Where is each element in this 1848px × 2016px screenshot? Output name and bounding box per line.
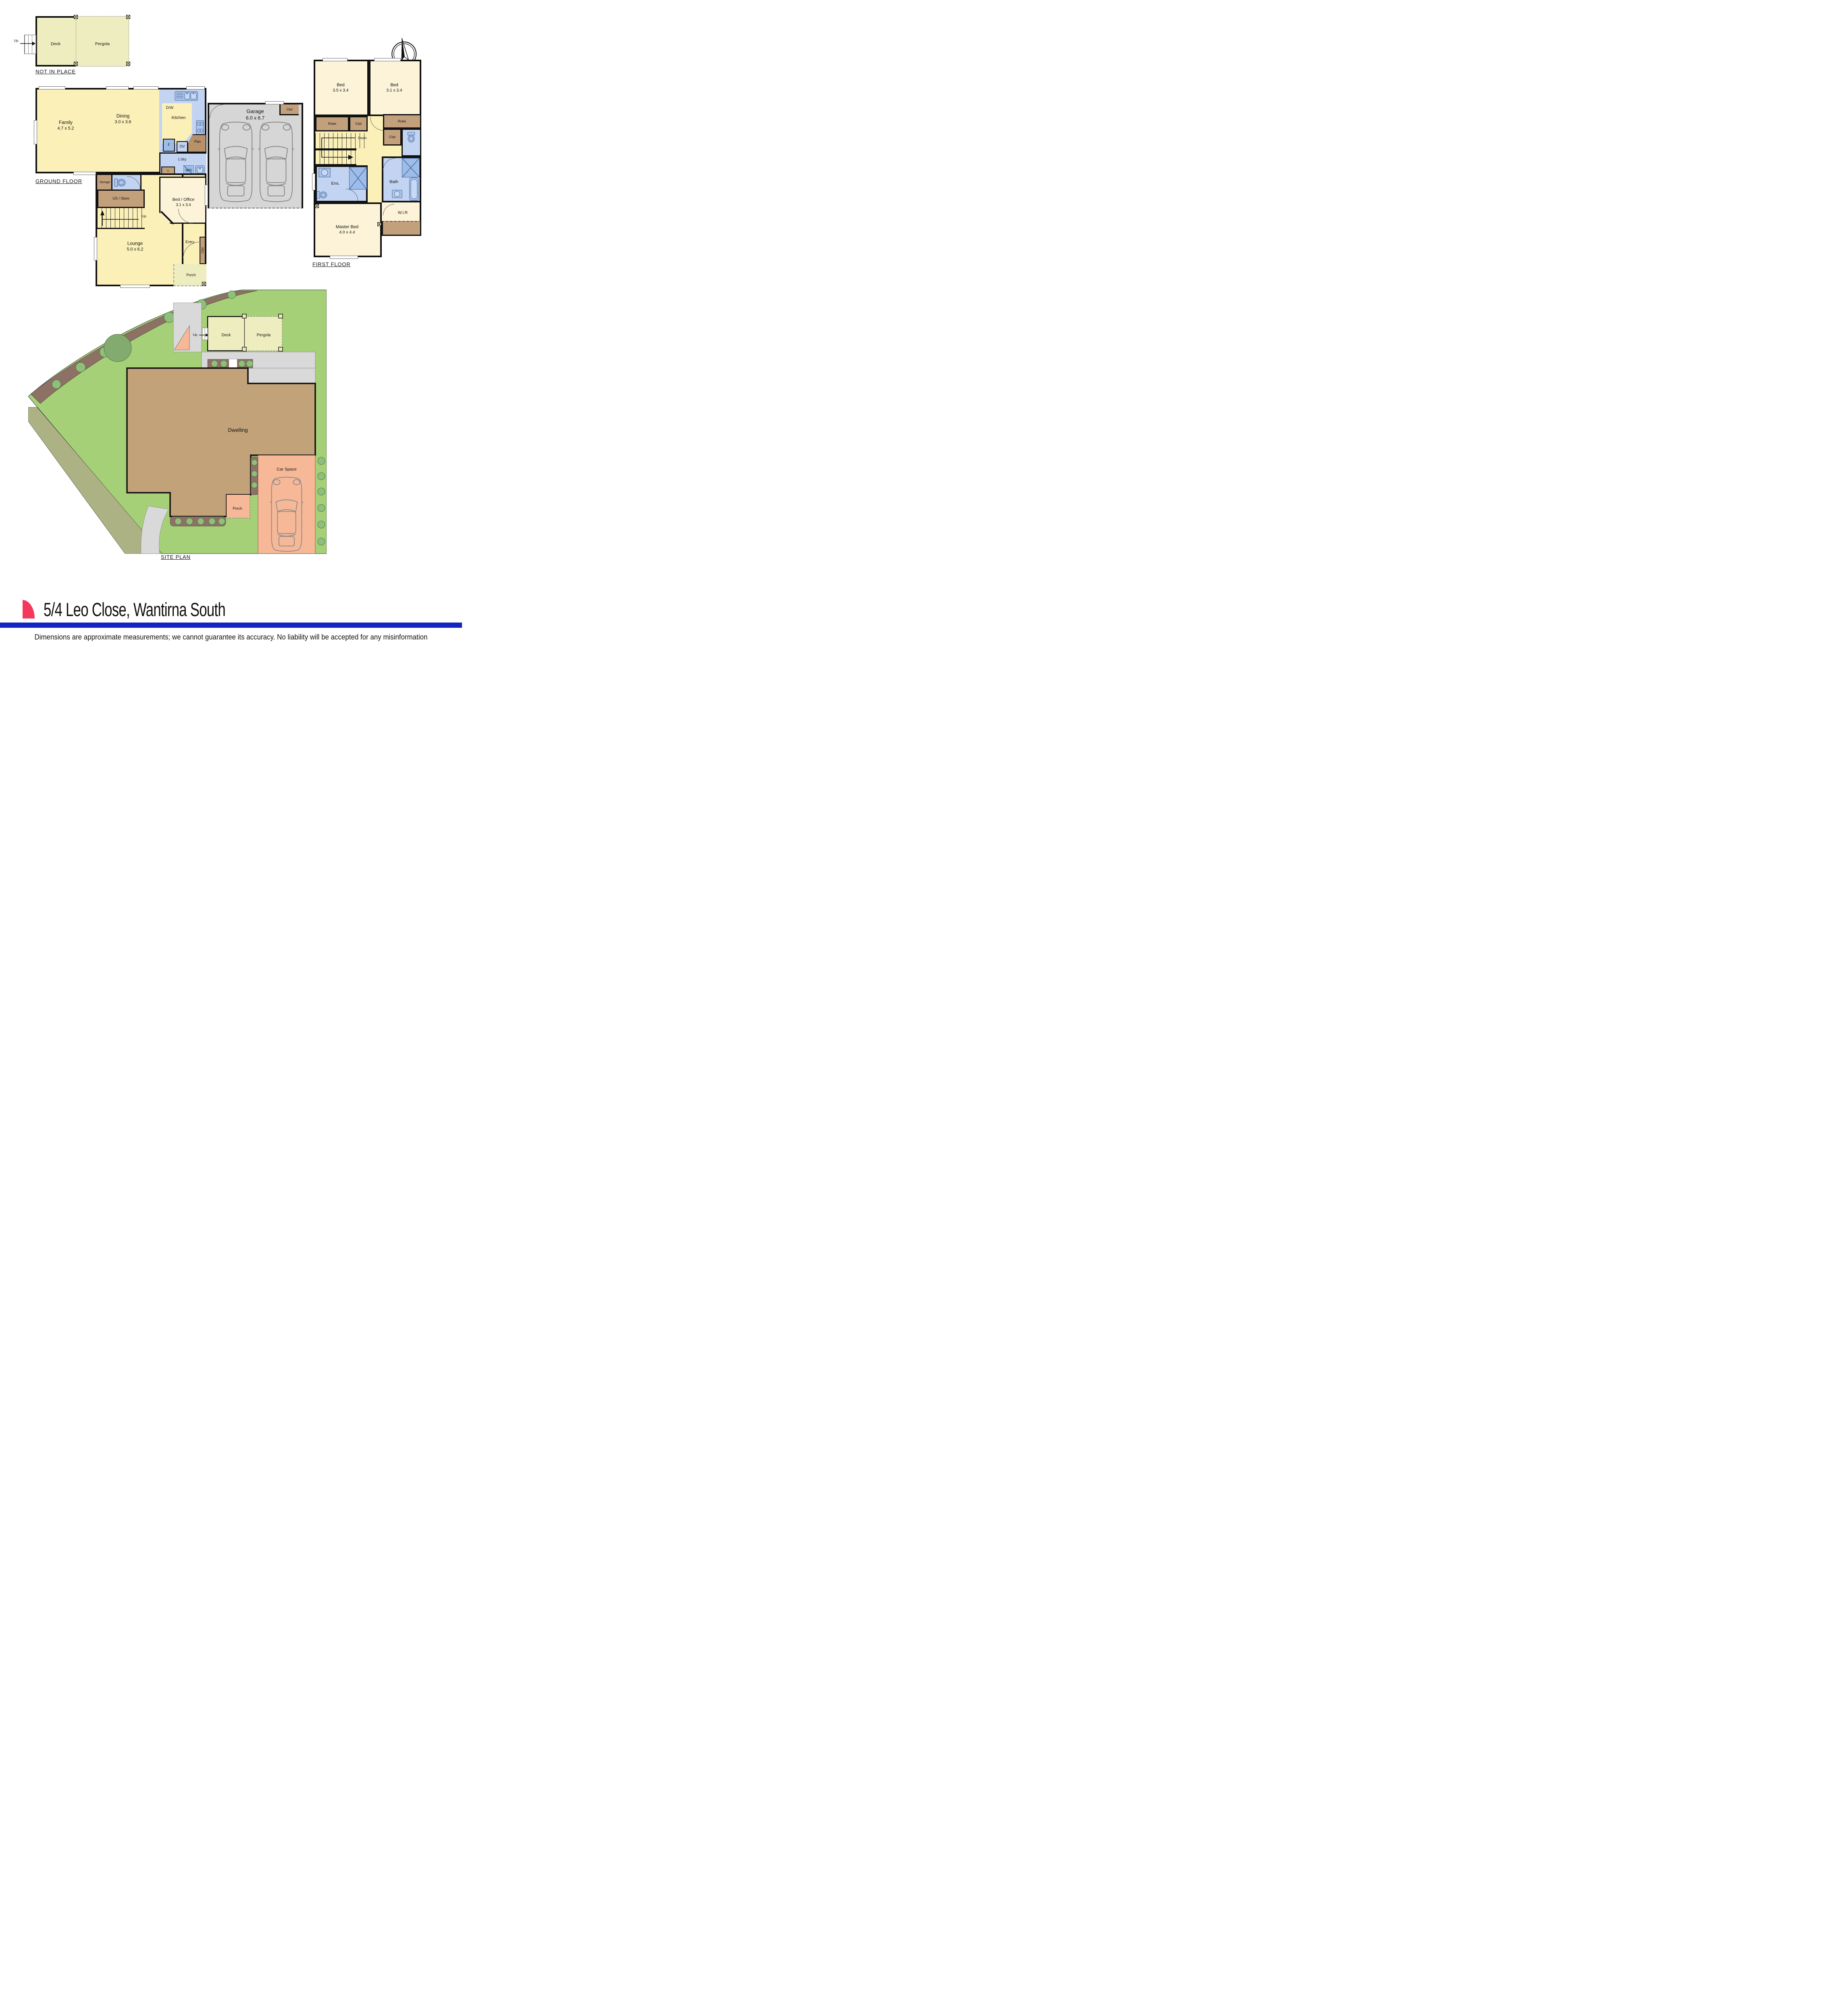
pergola-post-icon <box>74 62 78 66</box>
not-in-place-heading: NOT IN PLACE <box>35 69 76 75</box>
site-plan-heading: SITE PLAN <box>161 554 191 560</box>
window <box>39 86 65 90</box>
cooktop-icon <box>196 120 204 135</box>
toilet-icon <box>114 177 126 188</box>
window <box>34 120 37 144</box>
label-storage: Storage <box>100 180 110 184</box>
label-cbd-left: Cbd <box>355 121 362 126</box>
room-label-garage: Garage6.0 x 6.7 <box>246 108 264 122</box>
kitchen-sink-icon <box>175 91 198 101</box>
label-entry-cbd: Cbd <box>201 248 205 254</box>
label-washer: W/D <box>185 169 192 173</box>
window <box>106 86 129 90</box>
disclaimer-text: Dimensions are approximate measurements;… <box>14 633 448 641</box>
gf-up-label: Up <box>142 214 146 218</box>
label-garage-cbd: Cbd <box>287 108 293 112</box>
label-pantry: Pan <box>194 140 201 144</box>
label-cbd-right: Cbd <box>389 135 395 139</box>
garage-car-icon <box>258 120 294 203</box>
label-fridge: F <box>168 143 170 148</box>
nip-deck-label: Deck <box>51 42 60 47</box>
window <box>186 86 205 90</box>
window <box>374 58 401 61</box>
site-deck-label: Deck <box>222 333 231 337</box>
agency-logo-icon <box>23 600 35 619</box>
label-robe-right: Robe <box>398 119 406 123</box>
window <box>323 58 348 61</box>
label-dishwasher: D/W <box>166 106 173 110</box>
room-label-family: Family4.7 x 5.2 <box>58 120 74 132</box>
nip-up-label: Up <box>14 38 19 43</box>
room-label-ensuite: Ens. <box>331 181 339 187</box>
ff-down-label: Down <box>358 136 367 140</box>
shower-icon <box>349 167 367 190</box>
garage-car-icon <box>218 120 254 203</box>
pergola-post-icon <box>126 62 130 66</box>
gf-stairs-arrow-icon <box>98 209 141 227</box>
floorplan-page: Up Deck Pergola NOT IN PLACE Family4.7 x… <box>0 0 462 653</box>
first-floor-heading: FIRST FLOOR <box>312 261 351 267</box>
shower-icon <box>402 158 420 177</box>
site-porch-label: Porch <box>233 506 242 510</box>
page-title: 5/4 Leo Close, Wantirna South <box>44 598 225 621</box>
pergola-post-icon <box>74 15 78 19</box>
vanity-icon <box>392 190 402 198</box>
room-label-bed-right: Bed3.1 x 3.4 <box>386 82 402 94</box>
site-dwelling-label: Dwelling <box>228 427 248 433</box>
label-robe-left: Robe <box>328 121 336 126</box>
room-label-bed-left: Bed3.5 x 3.4 <box>333 82 348 94</box>
site-shrub-strip-bottom <box>170 516 226 526</box>
post-icon <box>377 222 381 226</box>
window <box>120 285 150 288</box>
label-oven: OV <box>179 144 185 149</box>
nip-up-arrow-icon <box>19 41 35 46</box>
room-label-bed-office: Bed / Office3.1 x 3.4 <box>173 197 195 208</box>
label-cupboard-small: c <box>167 169 169 173</box>
room-label-wir: W.I.R <box>398 210 408 216</box>
window <box>94 237 97 260</box>
pergola-post-icon <box>126 15 130 19</box>
label-understair: US / Store <box>112 196 129 201</box>
window <box>265 101 284 104</box>
room-label-kitchen: Kitchen <box>171 115 185 121</box>
site-path-garage <box>248 368 315 383</box>
footer-blue-bar <box>0 623 462 628</box>
site-porch: Porch <box>227 495 250 518</box>
site-car-space: Car Space <box>258 455 315 554</box>
nip-pergola-label: Pergola <box>95 42 110 47</box>
room-label-laundry: L'dry <box>178 157 186 162</box>
window <box>330 256 358 259</box>
site-car-space-label: Car Space <box>277 467 297 472</box>
window <box>312 173 315 190</box>
site-shrub-strip-top <box>208 359 253 368</box>
vanity-icon <box>318 168 331 177</box>
toilet-icon <box>316 190 327 200</box>
room-label-bath: Bath <box>389 179 398 185</box>
ground-floor-heading: GROUND FLOOR <box>35 178 82 184</box>
site-up-label: Up <box>193 333 198 337</box>
post-icon <box>315 204 319 208</box>
window <box>205 185 208 206</box>
site-shrub-strip-carspace <box>251 457 258 495</box>
label-porch-ground: Porch <box>186 273 196 278</box>
bathtub-icon <box>408 177 420 201</box>
toilet-icon <box>406 131 416 143</box>
room-label-master: Master Bed4.0 x 4.4 <box>336 224 358 235</box>
ff-wir-robe <box>382 221 421 236</box>
porch-post-icon <box>202 282 206 286</box>
room-label-dining: Dining3.0 x 3.6 <box>115 114 131 125</box>
site-plan: Up Deck Pergola Dwelling Porch <box>28 288 327 562</box>
site-pergola-label: Pergola <box>257 333 271 337</box>
room-label-lounge: Lounge5.0 x 6.2 <box>127 241 144 253</box>
window <box>73 172 96 175</box>
window <box>133 86 158 90</box>
